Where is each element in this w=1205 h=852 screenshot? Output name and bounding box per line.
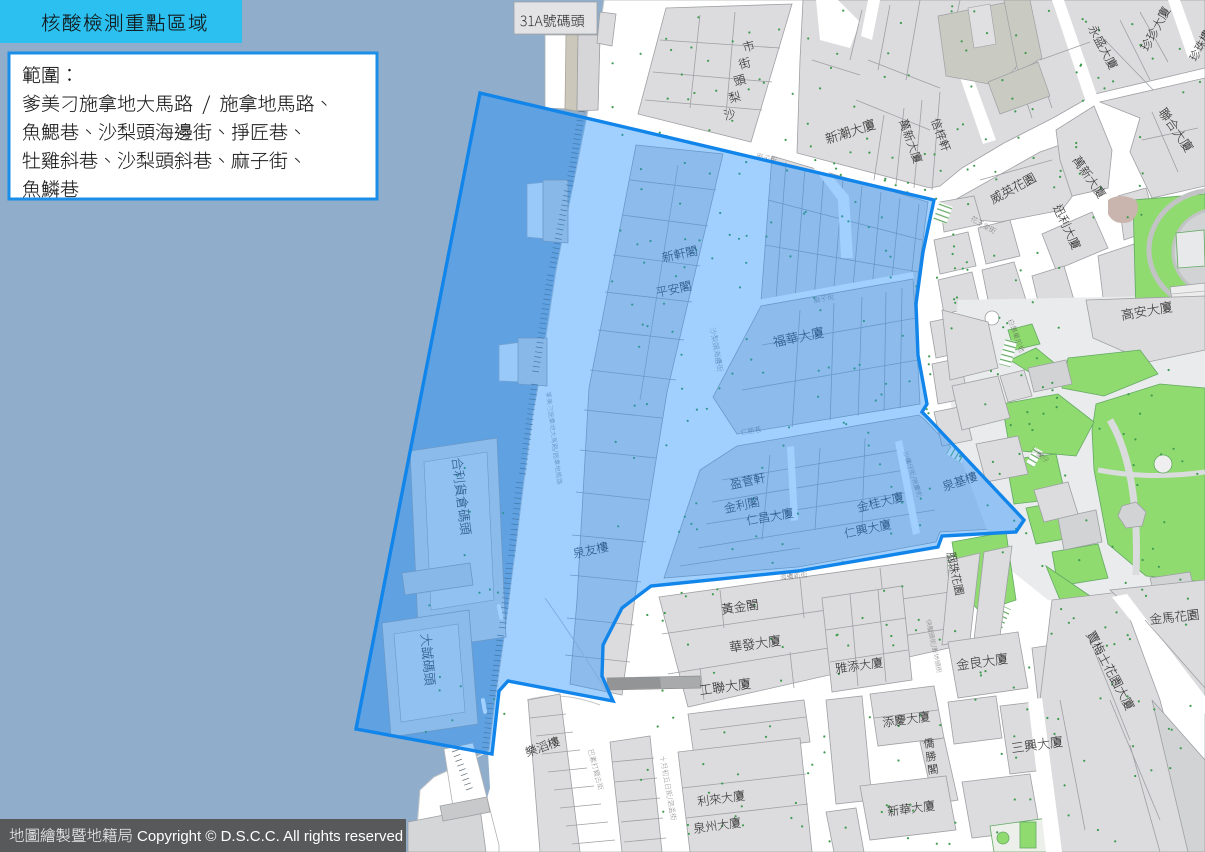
svg-text:Copyright © D.S.C.C. All right: Copyright © D.S.C.C. All rights reserved <box>137 828 403 845</box>
